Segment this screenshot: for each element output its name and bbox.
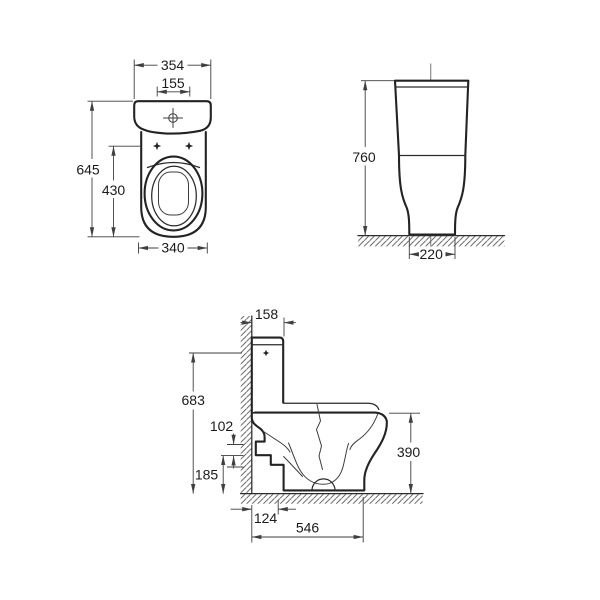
dim-label-base-width: 340 <box>161 240 185 256</box>
dimension-430: 430 <box>102 146 141 237</box>
dimension-340: 340 <box>139 240 208 256</box>
front-pedestal-outline <box>141 132 206 237</box>
dim-label-tank-depth: 158 <box>255 306 279 322</box>
bowl-opening <box>159 172 189 215</box>
dim-label-outlet-offset: 124 <box>254 510 278 526</box>
dimension-155: 155 <box>157 75 190 97</box>
side-view: 158 683 102 185 390 <box>182 306 423 543</box>
side-cistern-outline <box>252 338 283 413</box>
dimension-390: 390 <box>389 413 420 493</box>
floor-hatch <box>241 494 423 504</box>
toilet-dimension-drawing: 354 155 645 430 340 <box>0 0 600 600</box>
dimension-124: 124 <box>231 501 297 527</box>
dim-label-rear-height: 760 <box>352 149 376 165</box>
dimension-760: 760 <box>352 81 394 236</box>
dim-label-rim-height: 390 <box>397 444 421 460</box>
dimension-645: 645 <box>76 101 139 237</box>
dim-label-bowl-height: 430 <box>102 182 126 198</box>
technical-drawing-page: 354 155 645 430 340 <box>0 0 600 600</box>
rear-silhouette <box>395 81 468 235</box>
dim-label-flush-width: 155 <box>161 75 185 91</box>
seat-hinge-marker-icon <box>153 142 161 150</box>
side-seat-line <box>283 403 379 409</box>
extension-line <box>221 445 244 468</box>
dim-label-outlet-axis-height: 185 <box>195 467 219 483</box>
dimension-102: 102 <box>210 418 244 468</box>
dim-label-total-depth: 546 <box>296 520 320 536</box>
dim-label-tank-height: 683 <box>182 392 206 408</box>
front-view: 354 155 645 430 340 <box>76 57 210 256</box>
seat-hinge-marker-icon <box>185 142 193 150</box>
rear-view: 760 220 <box>352 64 504 262</box>
dim-label-tank-width: 354 <box>161 57 185 73</box>
dim-label-outlet-diameter: 102 <box>210 418 234 434</box>
dimension-185: 185 <box>195 456 223 494</box>
seat-outer-ring <box>145 157 203 231</box>
dim-label-base-depth: 220 <box>420 246 444 262</box>
dim-label-total-height: 645 <box>76 162 100 178</box>
